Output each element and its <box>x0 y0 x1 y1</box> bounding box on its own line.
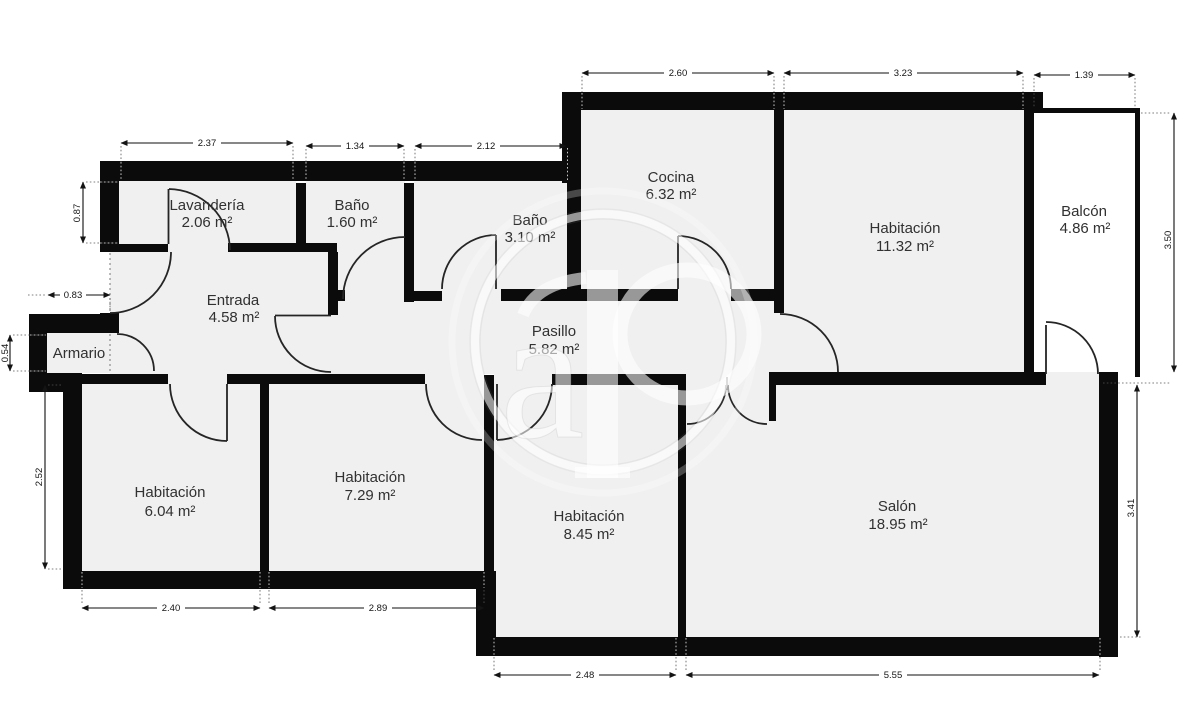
svg-text:2.60: 2.60 <box>669 68 688 79</box>
svg-text:11.32 m²: 11.32 m² <box>876 238 934 255</box>
svg-text:3.50: 3.50 <box>1163 231 1174 250</box>
svg-text:8.45 m²: 8.45 m² <box>564 526 615 543</box>
svg-text:Balcón: Balcón <box>1061 203 1107 220</box>
svg-text:Entrada: Entrada <box>207 292 260 309</box>
svg-text:Armario: Armario <box>53 345 106 362</box>
svg-text:1.60 m²: 1.60 m² <box>327 214 378 231</box>
svg-text:Habitación: Habitación <box>870 220 941 237</box>
svg-text:Cocina: Cocina <box>648 169 695 186</box>
svg-text:0.87: 0.87 <box>72 204 83 223</box>
svg-text:Baño: Baño <box>334 197 369 214</box>
svg-text:0.83: 0.83 <box>64 290 83 301</box>
svg-text:Habitación: Habitación <box>335 469 406 486</box>
svg-text:2.37: 2.37 <box>198 138 217 149</box>
svg-text:2.48: 2.48 <box>576 670 595 681</box>
svg-text:2.40: 2.40 <box>162 603 181 614</box>
svg-text:3.41: 3.41 <box>1126 499 1137 518</box>
svg-text:a: a <box>500 269 584 479</box>
svg-text:6.04 m²: 6.04 m² <box>145 503 196 520</box>
svg-text:4.58 m²: 4.58 m² <box>209 309 260 326</box>
svg-text:2.06 m²: 2.06 m² <box>182 214 233 231</box>
svg-text:Habitación: Habitación <box>135 484 206 501</box>
svg-text:5.55: 5.55 <box>884 670 903 681</box>
svg-text:1.39: 1.39 <box>1075 70 1094 81</box>
svg-text:2.52: 2.52 <box>34 468 45 487</box>
svg-text:2.12: 2.12 <box>477 141 496 152</box>
svg-text:2.89: 2.89 <box>369 603 388 614</box>
svg-text:Habitación: Habitación <box>554 508 625 525</box>
svg-text:3.23: 3.23 <box>894 68 913 79</box>
svg-text:0.54: 0.54 <box>0 344 11 363</box>
svg-text:Salón: Salón <box>878 498 916 515</box>
svg-text:7.29 m²: 7.29 m² <box>345 487 396 504</box>
svg-text:18.95 m²: 18.95 m² <box>868 516 927 533</box>
svg-text:Lavandería: Lavandería <box>169 197 245 214</box>
svg-text:4.86 m²: 4.86 m² <box>1060 220 1111 237</box>
svg-text:1.34: 1.34 <box>346 141 365 152</box>
